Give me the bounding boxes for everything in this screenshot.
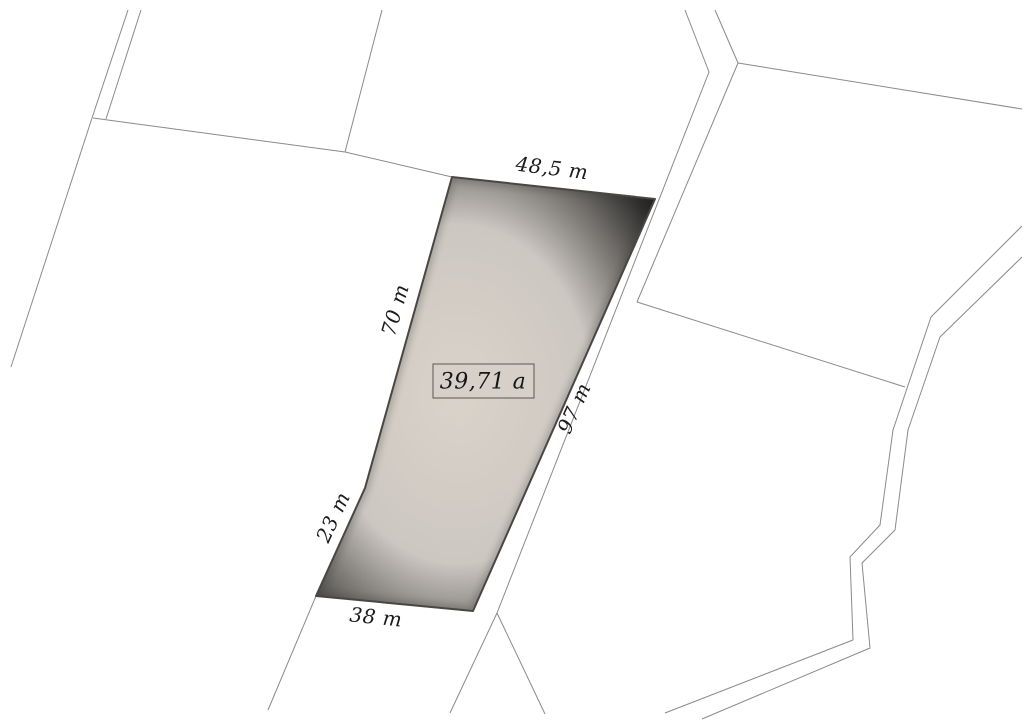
cadastral-map: 39,71 a 48,5 m 70 m 97 m 23 m 38 m [0, 0, 1024, 724]
area-label: 39,71 a [440, 370, 527, 395]
map-canvas[interactable]: 39,71 a 48,5 m 70 m 97 m 23 m 38 m [0, 0, 1024, 724]
